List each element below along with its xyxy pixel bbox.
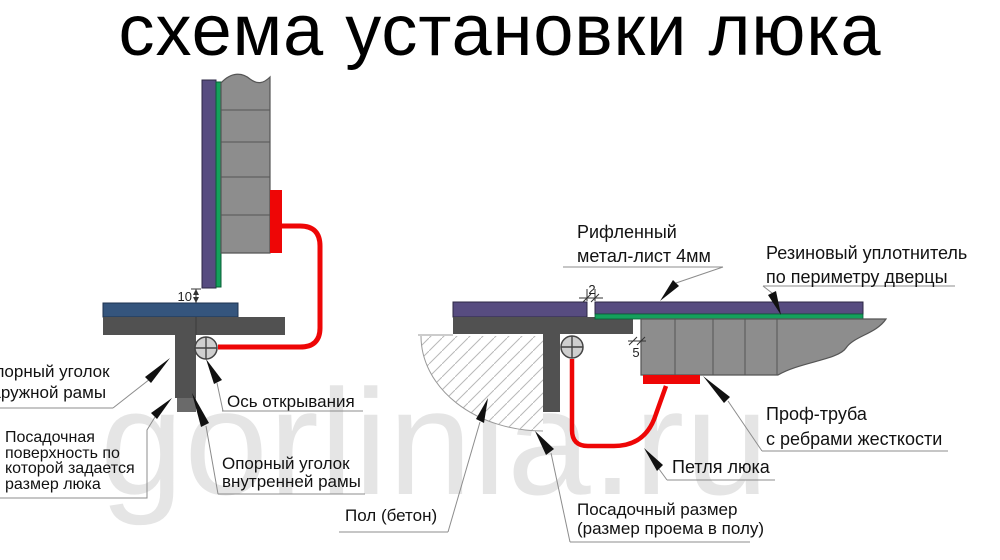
label-inner-angle: Опорный уголок внутренней рамы bbox=[222, 455, 361, 491]
label-floor: Пол (бетон) bbox=[345, 505, 437, 526]
diagram-page: gorlinia.ru bbox=[0, 0, 1000, 560]
axis-marker bbox=[195, 337, 217, 359]
lid-sheet bbox=[202, 80, 216, 288]
rubber-seal bbox=[595, 314, 863, 319]
dimension-10: 10 bbox=[178, 289, 201, 304]
page-title: схема установки люка bbox=[0, 0, 1000, 72]
frame-flange bbox=[453, 302, 587, 317]
hinge-bracket bbox=[643, 375, 700, 384]
label-seat-size: Посадочный размер (размер проема в полу) bbox=[577, 501, 764, 538]
label-pipe: Проф-труба с ребрами жесткости bbox=[766, 402, 942, 452]
dimension-2-value: 2 bbox=[588, 282, 595, 297]
label-opening-axis: Ось открывания bbox=[227, 391, 355, 412]
frame-stem-tip bbox=[177, 398, 196, 412]
label-seating-surface: Посадочная поверхность по которой задает… bbox=[5, 430, 135, 492]
label-hinge: Петля люка bbox=[672, 455, 770, 479]
lid-sheet bbox=[595, 302, 863, 314]
axis-marker bbox=[561, 336, 583, 358]
arrow-pipe bbox=[703, 376, 730, 403]
frame-stem bbox=[175, 317, 196, 398]
left-diagram: 10 bbox=[103, 74, 320, 412]
arrow-hinge bbox=[644, 448, 663, 471]
frame-stem bbox=[543, 317, 560, 412]
rubber-seal bbox=[216, 82, 221, 287]
dimension-2: 2 bbox=[579, 282, 603, 302]
arrow-seating-surface bbox=[151, 398, 172, 419]
hinge-bracket bbox=[270, 190, 282, 253]
dimension-5-value: 5 bbox=[632, 345, 639, 360]
dimension-10-value: 10 bbox=[178, 289, 192, 304]
support-angle-blue bbox=[103, 303, 238, 317]
arrow-seat-size bbox=[535, 431, 554, 455]
label-rubber-seal: Резиновый уплотнитель по периметру дверц… bbox=[766, 241, 967, 289]
prof-pipe-block bbox=[221, 74, 270, 253]
arrow-opening-axis bbox=[206, 359, 222, 384]
label-outer-angle: Опорный уголок наружной рамы bbox=[0, 361, 110, 403]
label-sheet: Рифленный метал-лист 4мм bbox=[577, 220, 711, 268]
prof-pipe-block bbox=[641, 319, 886, 375]
arrow-outer-angle bbox=[145, 358, 170, 383]
